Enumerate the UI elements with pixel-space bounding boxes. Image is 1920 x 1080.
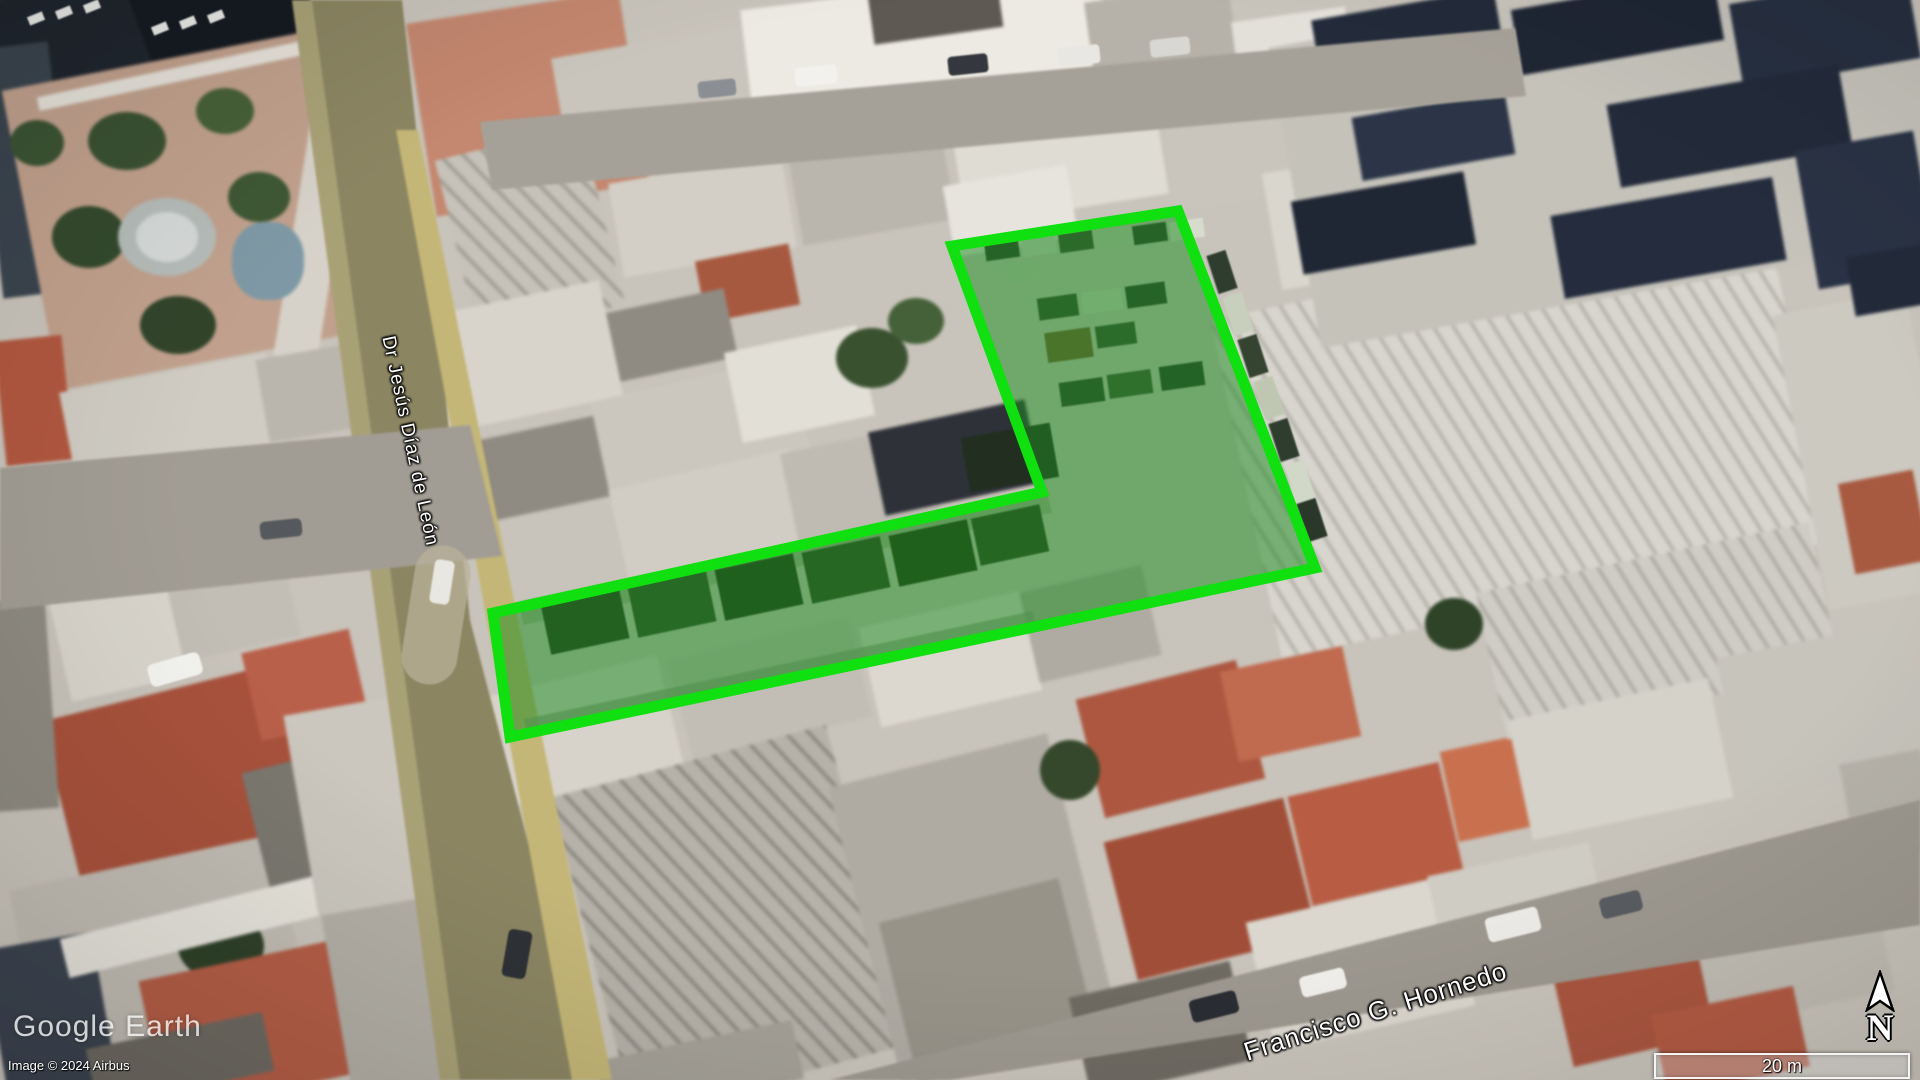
parcel-overlay — [0, 0, 1920, 1080]
north-arrow-icon — [1861, 970, 1899, 1012]
map-view[interactable]: Dr Jesús Díaz de León Francisco G. Horne… — [0, 0, 1920, 1080]
north-letter: N — [1850, 1013, 1910, 1044]
highlighted-parcel-polygon[interactable] — [493, 211, 1315, 737]
compass-north[interactable]: N — [1850, 970, 1910, 1044]
scale-bar: 20 m — [1654, 1053, 1910, 1079]
scale-bar-label: 20 m — [1762, 1056, 1802, 1077]
imagery-attribution: Image © 2024 Airbus — [8, 1058, 130, 1073]
google-earth-logo: Google Earth — [13, 1010, 202, 1044]
